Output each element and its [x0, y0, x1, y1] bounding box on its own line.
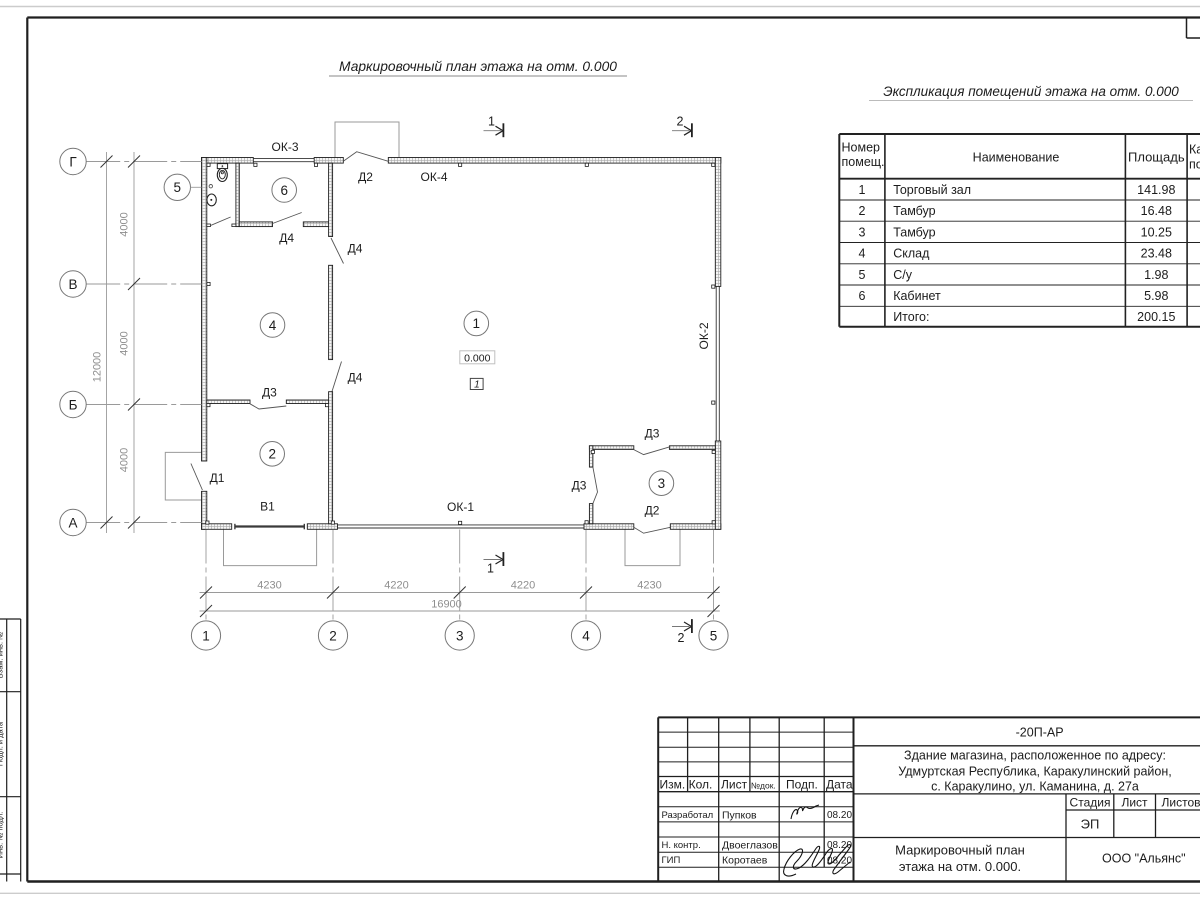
svg-text:2: 2 [678, 631, 685, 645]
svg-text:Площадь: Площадь [1128, 150, 1185, 165]
svg-text:А: А [68, 515, 77, 530]
svg-text:ООО "Альянс": ООО "Альянс" [1102, 852, 1186, 866]
svg-text:ГИП: ГИП [662, 855, 681, 866]
svg-text:1: 1 [473, 316, 481, 331]
svg-text:4230: 4230 [257, 580, 281, 592]
svg-text:4: 4 [582, 628, 590, 643]
svg-text:Ка: Ка [1189, 143, 1200, 157]
svg-text:5: 5 [859, 268, 866, 282]
svg-text:08.20: 08.20 [827, 810, 852, 821]
svg-text:5: 5 [710, 628, 718, 643]
svg-text:23.48: 23.48 [1141, 247, 1172, 261]
svg-text:200.15: 200.15 [1137, 310, 1175, 324]
svg-text:ОК-2: ОК-2 [697, 322, 711, 349]
svg-text:4: 4 [859, 247, 866, 261]
svg-text:Д3: Д3 [645, 427, 660, 441]
svg-text:Итого:: Итого: [893, 310, 929, 324]
svg-text:Склад: Склад [893, 247, 930, 261]
svg-text:6: 6 [280, 183, 288, 198]
svg-text:этажа на отм. 0.000.: этажа на отм. 0.000. [899, 859, 1021, 874]
svg-text:ЭП: ЭП [1081, 817, 1100, 832]
svg-text:с. Каракулино, ул. Каманина, д: с. Каракулино, ул. Каманина, д. 27а [931, 780, 1139, 794]
svg-text:Номер: Номер [842, 141, 881, 155]
svg-text:1: 1 [487, 562, 494, 576]
svg-text:Тамбур: Тамбур [893, 225, 935, 239]
svg-text:ОК-3: ОК-3 [272, 140, 299, 154]
svg-text:1: 1 [488, 115, 495, 129]
svg-text:Дата: Дата [826, 778, 853, 792]
svg-text:5.98: 5.98 [1144, 289, 1168, 303]
svg-text:Листов: Листов [1162, 796, 1200, 810]
svg-text:Экспликация помещений этажа на: Экспликация помещений этажа на отм. 0.00… [883, 84, 1179, 99]
svg-text:4000: 4000 [118, 212, 130, 236]
svg-text:Кол.: Кол. [689, 778, 713, 792]
svg-text:4220: 4220 [511, 580, 535, 592]
svg-text:2: 2 [329, 628, 337, 643]
svg-text:Д2: Д2 [645, 504, 660, 518]
svg-text:Лист: Лист [721, 778, 748, 792]
svg-text:Инв. № подл.: Инв. № подл. [0, 812, 5, 859]
svg-text:5: 5 [174, 180, 182, 195]
svg-text:Маркировочный план: Маркировочный план [895, 843, 1025, 858]
svg-text:10.25: 10.25 [1141, 225, 1172, 239]
svg-text:Подп. и дата: Подп. и дата [0, 721, 5, 766]
svg-text:1: 1 [202, 628, 210, 643]
svg-text:Удмуртская Республика, Каракул: Удмуртская Республика, Каракулинский рай… [898, 765, 1172, 779]
svg-text:Изм.: Изм. [660, 778, 686, 792]
svg-text:141.98: 141.98 [1137, 183, 1175, 197]
svg-text:2: 2 [677, 115, 684, 129]
svg-text:Маркировочный план этажа на от: Маркировочный план этажа на отм. 0.000 [339, 59, 617, 74]
svg-text:3: 3 [859, 225, 866, 239]
svg-text:2: 2 [268, 447, 276, 462]
svg-text:Здание магазина, расположенное: Здание магазина, расположенное по адресу… [904, 749, 1166, 763]
svg-text:Д4: Д4 [279, 231, 294, 245]
svg-text:4000: 4000 [118, 448, 130, 472]
svg-text:16.48: 16.48 [1141, 204, 1172, 218]
svg-text:С/у: С/у [893, 268, 913, 282]
svg-text:1: 1 [859, 183, 866, 197]
svg-text:Пупков: Пупков [722, 809, 757, 821]
svg-text:Д4: Д4 [348, 242, 363, 256]
svg-text:Коротаев: Коротаев [722, 855, 768, 867]
svg-text:Лист: Лист [1121, 796, 1148, 810]
svg-text:Д3: Д3 [262, 386, 277, 400]
svg-text:4220: 4220 [384, 580, 408, 592]
svg-text:2: 2 [859, 204, 866, 218]
svg-text:Торговый зал: Торговый зал [893, 183, 971, 197]
svg-text:Д2: Д2 [358, 170, 373, 184]
svg-text:-20П-АР: -20П-АР [1016, 726, 1064, 740]
svg-text:В1: В1 [260, 500, 275, 514]
svg-text:ОК-1: ОК-1 [447, 500, 474, 514]
svg-text:3: 3 [658, 476, 666, 491]
svg-text:В: В [68, 277, 77, 292]
svg-text:№док.: №док. [751, 780, 776, 790]
svg-text:Д1: Д1 [210, 471, 225, 485]
svg-text:4: 4 [269, 318, 277, 333]
svg-text:Д3: Д3 [572, 479, 587, 493]
svg-text:4230: 4230 [637, 580, 661, 592]
svg-text:12000: 12000 [92, 352, 104, 383]
svg-text:Двоеглазов: Двоеглазов [722, 840, 778, 852]
svg-text:Н. контр.: Н. контр. [662, 840, 701, 851]
svg-text:0.000: 0.000 [464, 352, 490, 364]
svg-text:ОК-4: ОК-4 [421, 170, 448, 184]
svg-text:Г: Г [69, 154, 77, 169]
svg-text:3: 3 [456, 628, 464, 643]
svg-text:Стадия: Стадия [1070, 796, 1111, 810]
svg-text:Д4: Д4 [348, 371, 363, 385]
svg-text:Наименование: Наименование [973, 151, 1060, 165]
svg-text:по: по [1189, 158, 1200, 172]
svg-text:Взам. инв. №: Взам. инв. № [0, 632, 5, 678]
svg-text:Б: Б [69, 397, 78, 412]
svg-text:помещ.: помещ. [842, 155, 885, 169]
svg-text:Подп.: Подп. [786, 778, 818, 792]
svg-text:4000: 4000 [118, 331, 130, 355]
svg-text:16900: 16900 [431, 599, 462, 611]
svg-text:1: 1 [474, 380, 480, 391]
svg-text:1.98: 1.98 [1144, 268, 1168, 282]
svg-text:Тамбур: Тамбур [893, 204, 935, 218]
svg-text:Кабинет: Кабинет [893, 289, 941, 303]
svg-text:6: 6 [859, 289, 866, 303]
svg-text:Разработал: Разработал [662, 810, 714, 821]
